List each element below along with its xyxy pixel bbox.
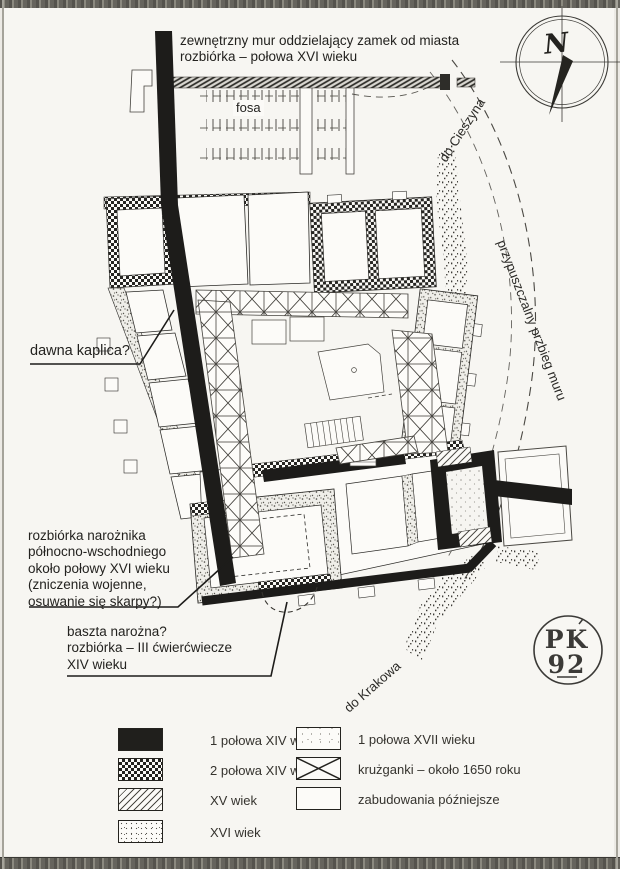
legend-swatch-checker	[118, 758, 163, 781]
legend-label: zabudowania późniejsze	[358, 792, 500, 807]
label-dawna-kaplica: dawna kaplica?	[30, 343, 130, 361]
north-needle-icon	[549, 55, 573, 115]
stamp-pk92: PK 92	[534, 616, 602, 684]
stamp-line2: 92	[548, 650, 587, 679]
label-do-cieszyna: do Cieszyna	[436, 95, 488, 165]
legend-swatch-outline	[296, 787, 341, 810]
label-outer-wall: zewnętrzny mur oddzielający zamek od mia…	[180, 33, 490, 66]
legend-swatch-stipple	[118, 820, 163, 843]
legend-label: XVI wiek	[210, 825, 261, 840]
label-rozbiorka-narozhnika: rozbiórka narożnika północno-wschodniego…	[28, 528, 170, 610]
label-do-krakowa: do Krakowa	[341, 658, 404, 715]
legend: 1 połowa XIV wieku 2 połowa XIV wieku XV…	[0, 720, 620, 850]
compass-rose: N	[500, 6, 620, 122]
legend-label: 1 połowa XVII wieku	[358, 732, 475, 747]
legend-swatch-diagonal-hatch	[118, 788, 163, 811]
legend-swatch-x-cross	[296, 757, 341, 780]
legend-swatch-stipple-light	[296, 727, 341, 750]
label-baszta-narozna: baszta narożna? rozbiórka – III ćwierćwi…	[67, 624, 232, 673]
compass-north-letter: N	[542, 27, 572, 61]
legend-swatch-solid-black	[118, 728, 163, 751]
legend-label: krużganki – około 1650 roku	[358, 762, 521, 777]
label-fosa: fosa	[233, 100, 264, 116]
north-range-rooms	[104, 190, 436, 293]
legend-label: XV wiek	[210, 793, 257, 808]
outer-town-wall	[170, 74, 475, 90]
